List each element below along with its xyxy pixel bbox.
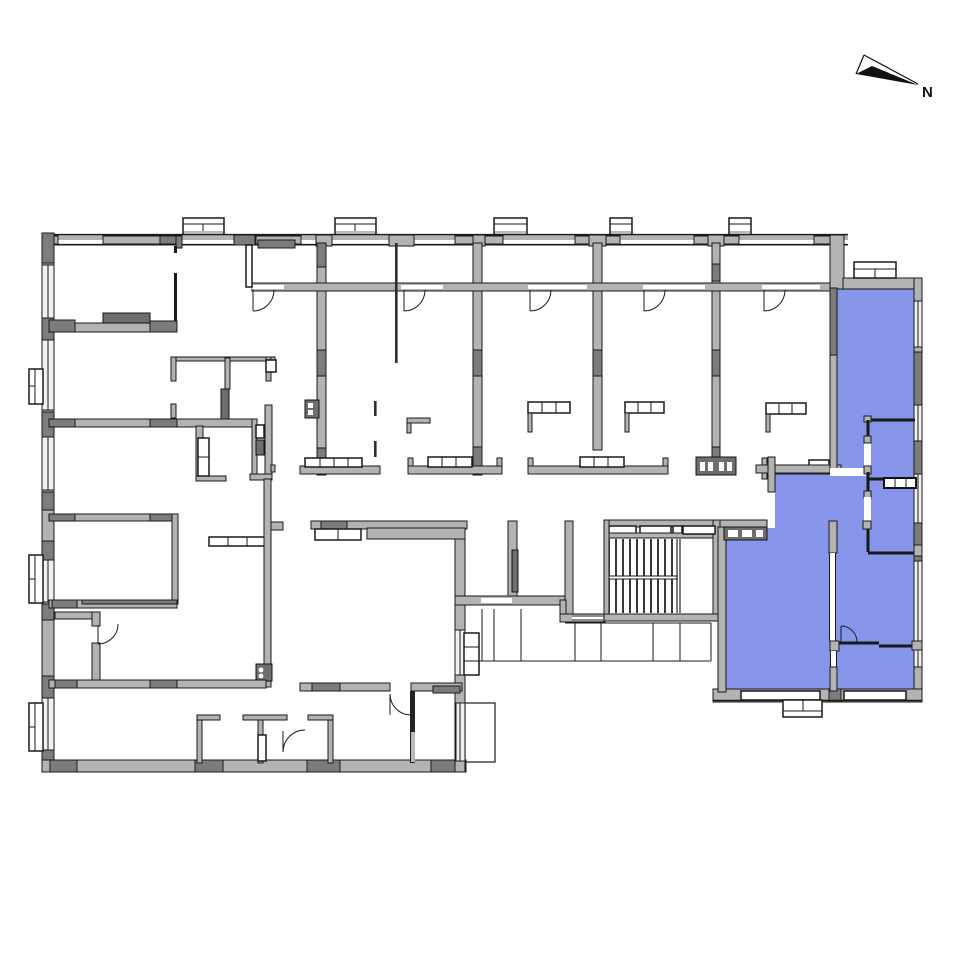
svg-text:N: N	[922, 84, 933, 101]
